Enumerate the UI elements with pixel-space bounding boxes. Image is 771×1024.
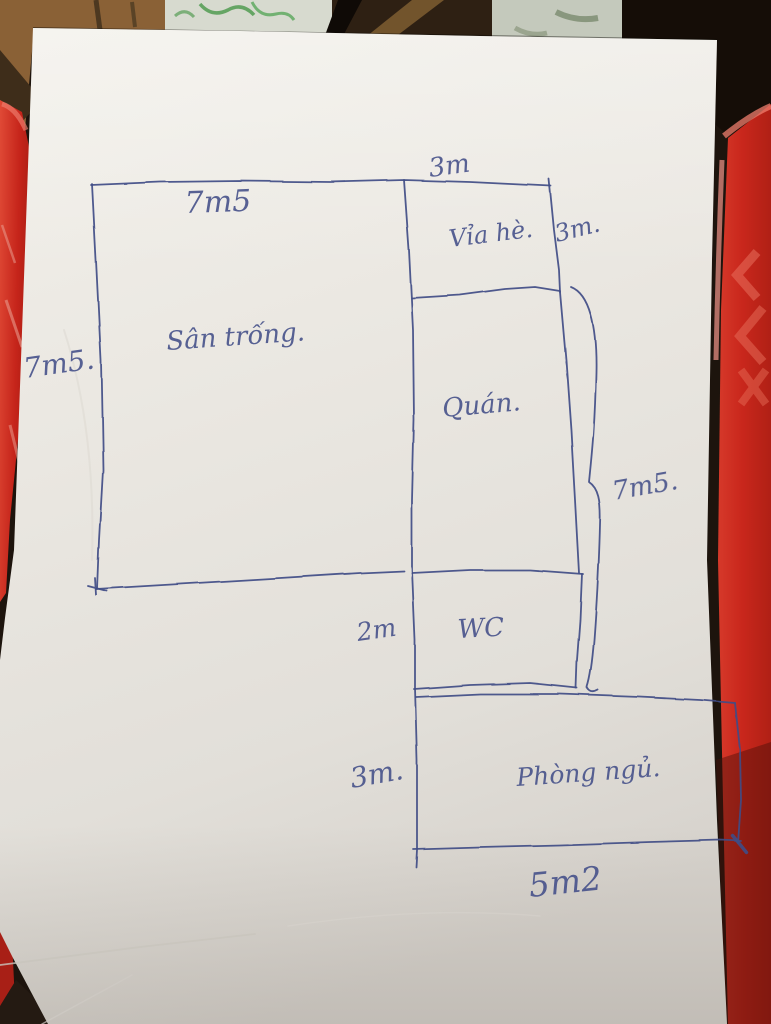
dimension-label-phong-ngu-bottom: 5m2 bbox=[527, 859, 604, 905]
room-label-wc: WC bbox=[457, 613, 505, 645]
paper-sheet bbox=[0, 28, 727, 1024]
dimension-label-san-trong-top: 7m5 bbox=[184, 184, 252, 221]
paper-shading bbox=[0, 28, 727, 1024]
scene: 7m5 7m5. Sân trống. 3m Vỉa hè. 3m. Quán.… bbox=[0, 0, 771, 1024]
dimension-label-wc-left: 2m bbox=[354, 613, 398, 647]
dimension-label-via-he-top: 3m bbox=[427, 148, 472, 183]
photo-of-floor-plan-sketch: 7m5 7m5. Sân trống. 3m Vỉa hè. 3m. Quán.… bbox=[0, 0, 771, 1024]
